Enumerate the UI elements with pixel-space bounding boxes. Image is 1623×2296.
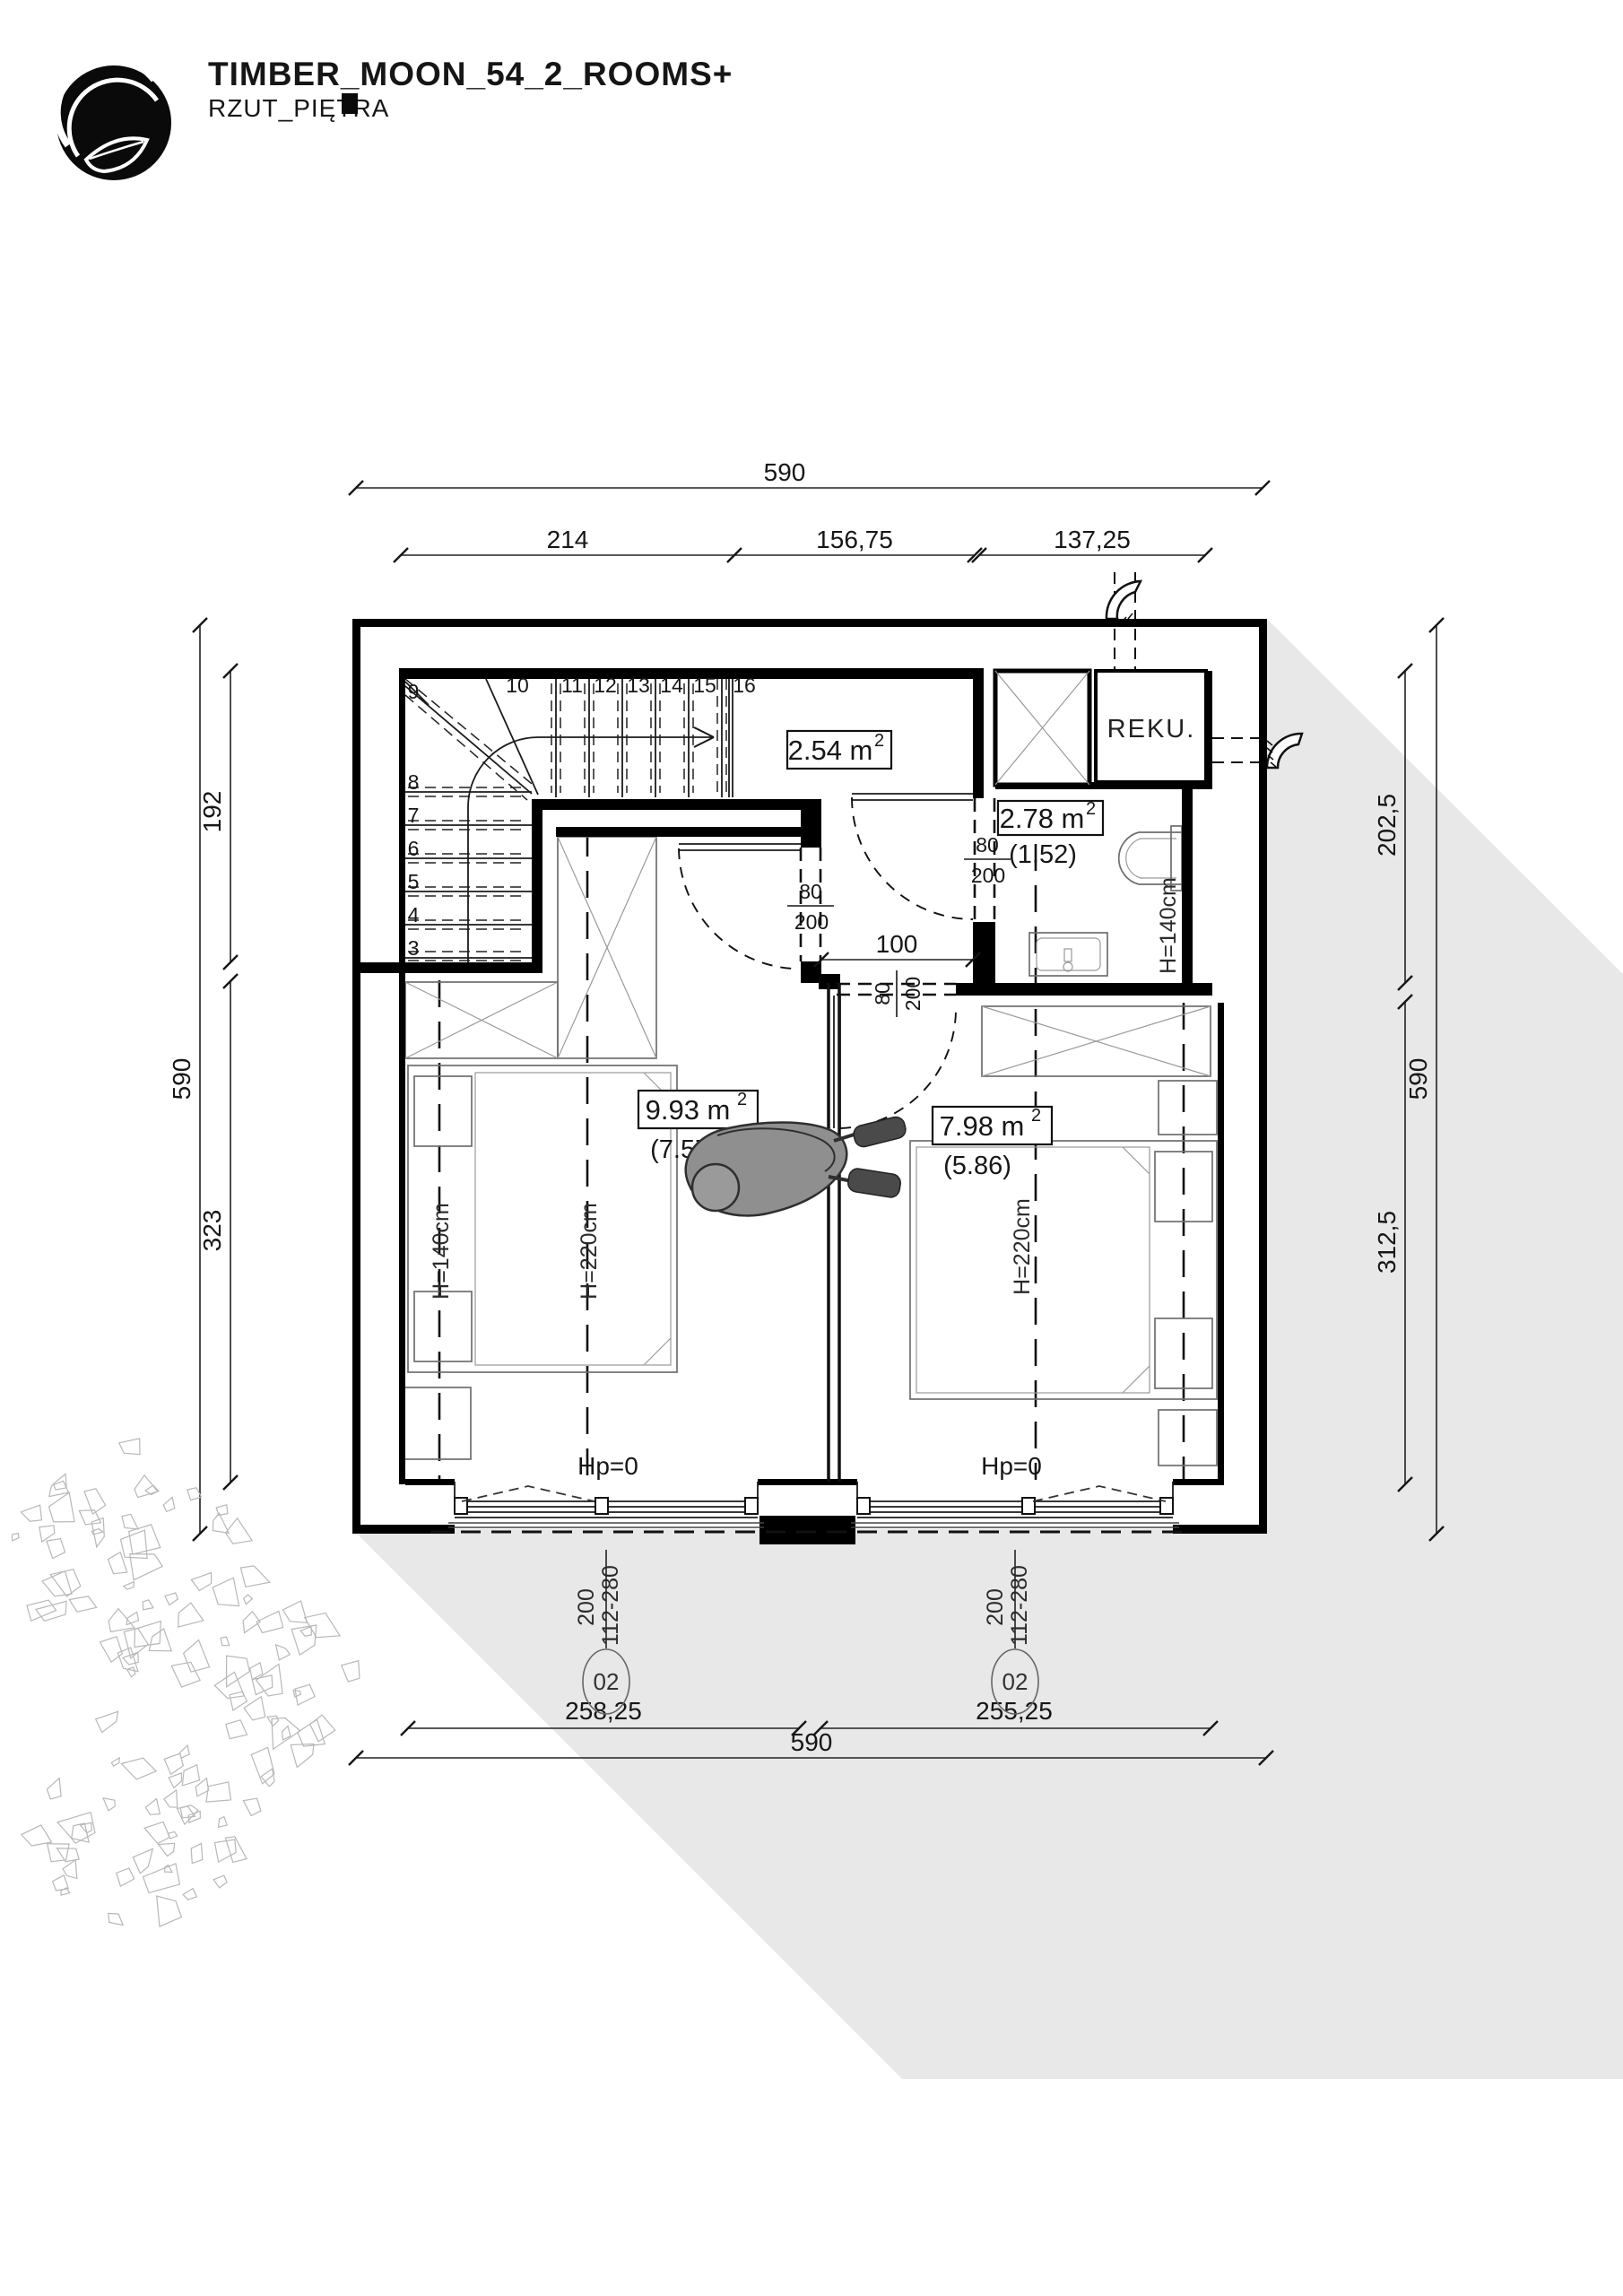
floor-level-label: Hp=0 bbox=[577, 1452, 638, 1480]
sheet-title: TIMBER_MOON_54_2_ROOMS+ bbox=[208, 56, 733, 92]
svg-text:80: 80 bbox=[871, 982, 894, 1005]
height-label: H=220cm bbox=[1010, 1198, 1035, 1295]
svg-text:5: 5 bbox=[408, 870, 420, 893]
svg-text:7: 7 bbox=[408, 804, 420, 827]
svg-text:9.93 m: 9.93 m bbox=[646, 1094, 731, 1126]
svg-text:6: 6 bbox=[408, 837, 420, 860]
svg-text:(1.52): (1.52) bbox=[1009, 840, 1077, 869]
wardrobe-right bbox=[982, 1006, 1211, 1076]
window-right bbox=[851, 1486, 1179, 1527]
svg-text:2.54 m: 2.54 m bbox=[788, 735, 873, 766]
floor-plan-sheet: TIMBER_MOON_54_2_ROOMS+ RZUT_PIĘTRA bbox=[0, 0, 1623, 2296]
bedroom-right-label: 7.98 m 2 (5.86) bbox=[933, 1106, 1052, 1180]
svg-text:255,25: 255,25 bbox=[976, 1697, 1053, 1725]
staircase bbox=[405, 679, 733, 962]
svg-text:(5.86): (5.86) bbox=[943, 1152, 1011, 1180]
hall-label: 2.54 m 2 bbox=[787, 731, 891, 769]
svg-text:100: 100 bbox=[876, 930, 918, 958]
svg-text:312,5: 312,5 bbox=[1373, 1211, 1401, 1274]
svg-text:11: 11 bbox=[561, 674, 583, 697]
svg-text:9: 9 bbox=[408, 680, 420, 703]
door-size-left: 80 200 bbox=[787, 880, 834, 934]
passage-dimension: 100 bbox=[814, 930, 980, 967]
floor-level-label: Hp=0 bbox=[981, 1452, 1042, 1480]
svg-text:156,75: 156,75 bbox=[816, 526, 893, 553]
svg-text:2: 2 bbox=[737, 1090, 747, 1109]
svg-text:200: 200 bbox=[901, 977, 924, 1011]
closet bbox=[995, 671, 1089, 785]
svg-text:590: 590 bbox=[1404, 1058, 1432, 1100]
dimension-top: 590 214 156,75 137,25 bbox=[349, 458, 1270, 562]
height-label: H=220cm bbox=[577, 1203, 602, 1300]
svg-text:8: 8 bbox=[408, 770, 420, 794]
stair-numbers: 3 4 5 6 7 8 9 10 11 12 13 14 15 16 bbox=[408, 674, 756, 960]
svg-text:200: 200 bbox=[971, 864, 1005, 887]
svg-text:16: 16 bbox=[733, 674, 756, 697]
height-label: H=140cm bbox=[1156, 877, 1181, 974]
svg-text:4: 4 bbox=[408, 903, 420, 926]
window-left bbox=[448, 1486, 764, 1527]
svg-text:2.78 m: 2.78 m bbox=[1000, 803, 1085, 834]
reku-unit: REKU. bbox=[1096, 671, 1206, 782]
person-figure bbox=[686, 1115, 907, 1215]
nightstand bbox=[1159, 1081, 1217, 1135]
svg-text:200: 200 bbox=[794, 910, 829, 934]
svg-text:323: 323 bbox=[198, 1210, 226, 1252]
svg-text:15: 15 bbox=[693, 674, 716, 697]
svg-text:200: 200 bbox=[574, 1588, 599, 1626]
svg-text:137,25: 137,25 bbox=[1054, 526, 1131, 553]
text-artifact bbox=[342, 93, 358, 114]
svg-text:590: 590 bbox=[791, 1728, 833, 1756]
reku-label: REKU. bbox=[1107, 715, 1196, 744]
svg-text:2: 2 bbox=[874, 731, 884, 751]
door-size-bathroom: 80 200 bbox=[964, 833, 1011, 887]
logo bbox=[56, 58, 171, 180]
dimension-left: 590 192 323 bbox=[168, 618, 238, 1541]
svg-text:590: 590 bbox=[764, 458, 806, 486]
svg-text:80: 80 bbox=[976, 833, 999, 857]
svg-text:590: 590 bbox=[168, 1058, 195, 1100]
svg-text:200: 200 bbox=[983, 1588, 1008, 1626]
wardrobe-left-a bbox=[405, 982, 558, 1058]
svg-text:202,5: 202,5 bbox=[1373, 794, 1401, 857]
svg-text:3: 3 bbox=[408, 936, 420, 960]
door-size-right: 80 200 bbox=[871, 970, 924, 1017]
svg-text:14: 14 bbox=[660, 674, 683, 697]
svg-text:258,25: 258,25 bbox=[565, 1697, 642, 1725]
svg-text:112-280: 112-280 bbox=[598, 1565, 623, 1646]
svg-text:02: 02 bbox=[1002, 1668, 1028, 1695]
nightstand bbox=[404, 1387, 471, 1459]
svg-text:214: 214 bbox=[547, 526, 589, 553]
svg-text:80: 80 bbox=[799, 880, 822, 903]
svg-text:2: 2 bbox=[1086, 799, 1096, 819]
svg-text:2: 2 bbox=[1031, 1106, 1041, 1126]
height-label: H=140cm bbox=[429, 1203, 454, 1300]
bathroom-label: 2.78 m 2 (1.52) bbox=[998, 799, 1103, 869]
sink bbox=[1029, 933, 1107, 976]
window-pier bbox=[759, 1516, 855, 1544]
door-bathroom bbox=[852, 794, 994, 922]
wardrobe-left-b bbox=[558, 837, 656, 1058]
svg-text:112-280: 112-280 bbox=[1007, 1565, 1032, 1646]
svg-text:12: 12 bbox=[594, 674, 617, 697]
roof-height-lines bbox=[439, 679, 1184, 1480]
svg-text:7.98 m: 7.98 m bbox=[940, 1110, 1025, 1142]
tree-scatter bbox=[13, 1439, 360, 1926]
svg-text:10: 10 bbox=[506, 674, 529, 697]
svg-text:13: 13 bbox=[627, 674, 650, 697]
svg-text:192: 192 bbox=[198, 791, 226, 833]
sheet-subtitle: RZUT_PIĘTRA bbox=[208, 94, 389, 122]
nightstand bbox=[1159, 1410, 1217, 1465]
svg-text:02: 02 bbox=[594, 1668, 620, 1695]
